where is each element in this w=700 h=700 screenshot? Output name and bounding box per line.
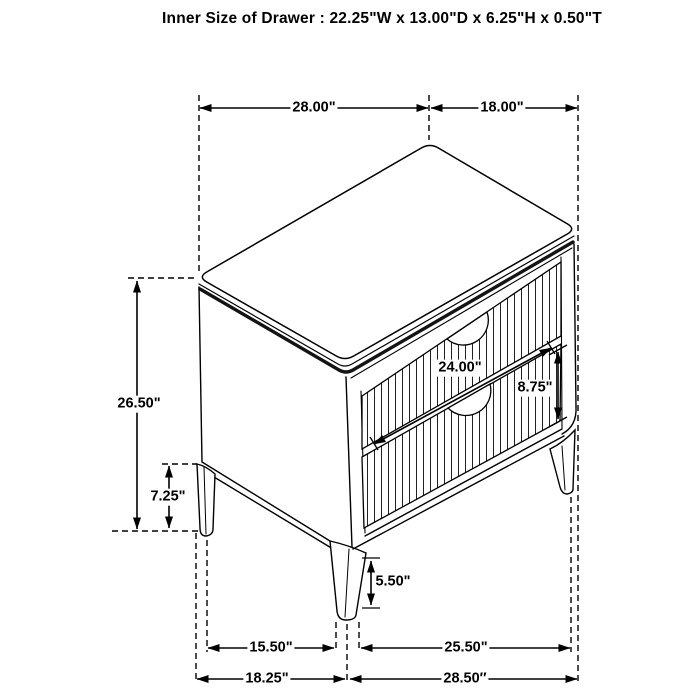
nightstand-line-art [0,0,700,700]
dim-label-leg-height: 5.50" [373,574,412,591]
right-corner-cap [562,407,576,434]
dim-label-overall-height: 26.50" [115,396,162,413]
left-face-bottom-rail-bottom [214,477,333,549]
dim-label-top-depth: 18.00" [478,100,525,117]
dim-label-base-height: 7.25" [148,489,187,506]
front-leg [330,541,366,620]
dim-label-overall-width: 28.50″ [441,671,488,688]
right-leg [550,430,575,494]
dim-label-overall-depth: 18.25" [243,671,290,688]
case-right-edge [574,244,576,407]
diagram-title: Inner Size of Drawer : 22.25"W x 13.00"D… [162,10,602,28]
case-left-edge [199,287,202,462]
dim-label-leg-span-front: 25.50" [442,640,489,657]
dim-label-top-width: 28.00" [290,100,337,117]
left-face-bottom-rail-top [202,462,330,541]
case-front-corner-edge [346,377,352,547]
dim-label-drawer-width: 24.00" [436,360,483,377]
dim-label-leg-span-side: 15.50" [247,640,294,657]
dim-label-drawer-height: 8.75" [515,380,554,397]
dimension-diagram: Inner Size of Drawer : 22.25"W x 13.00"D… [0,0,700,700]
